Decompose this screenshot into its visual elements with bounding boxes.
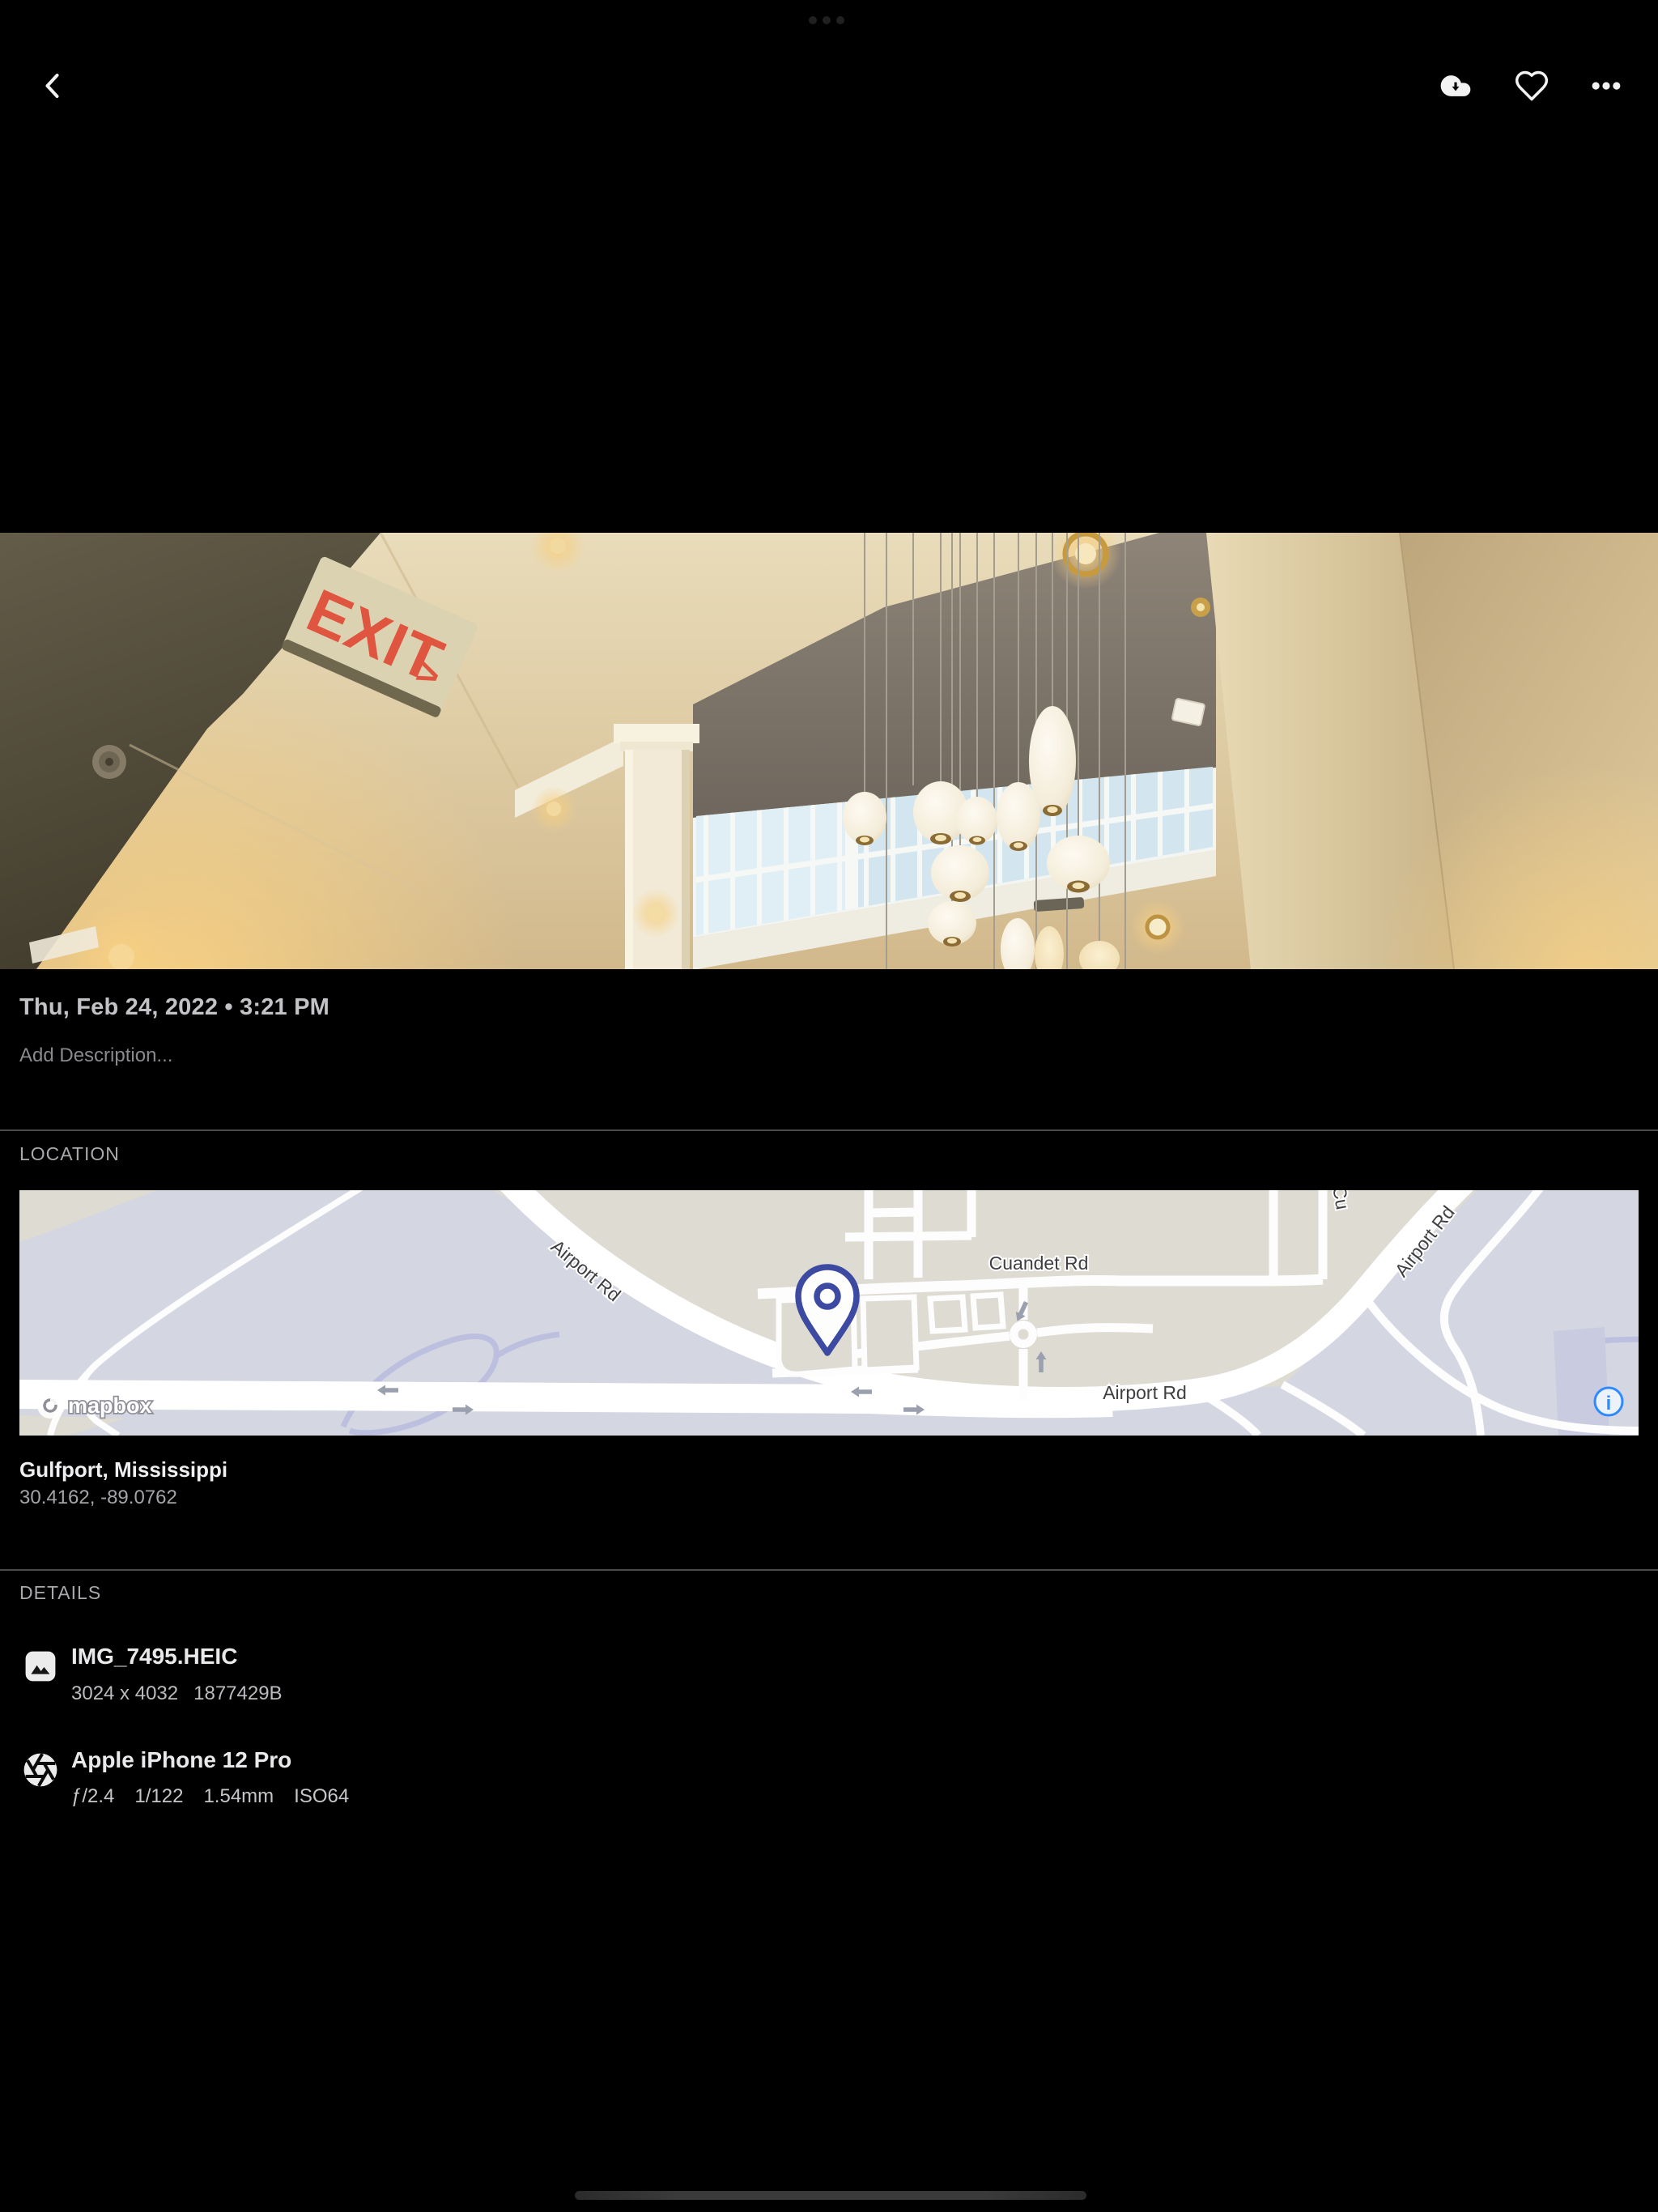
map-label-cu: Cu (1329, 1190, 1354, 1211)
heart-icon (1514, 68, 1550, 104)
home-indicator[interactable] (575, 2191, 1086, 2200)
image-file-icon (21, 1647, 60, 1686)
file-name: IMG_7495.HEIC (71, 1644, 283, 1670)
camera-shutter: 1/122 (134, 1785, 183, 1808)
aperture-icon (21, 1750, 60, 1789)
map-label-cuandet-rd: Cuandet Rd (989, 1253, 1089, 1274)
location-coordinates: 30.4162, -89.0762 (19, 1487, 177, 1509)
file-dimensions: 3024 x 4032 (71, 1682, 178, 1705)
location-place: Gulfport, Mississippi (19, 1457, 227, 1482)
download-button[interactable] (1438, 68, 1473, 104)
map-info-button[interactable]: i (1595, 1388, 1622, 1415)
file-detail-row: IMG_7495.HEIC 3024 x 4032 1877429B (21, 1644, 283, 1705)
location-header: LOCATION (19, 1143, 120, 1165)
multitask-indicator (809, 16, 844, 24)
divider (0, 1569, 1658, 1571)
description-input[interactable]: Add Description... (19, 1044, 172, 1067)
camera-detail-row: Apple iPhone 12 Pro ƒ/2.4 1/122 1.54mm I… (21, 1747, 349, 1808)
map-label-airport-rd-horizontal: Airport Rd (1103, 1382, 1187, 1403)
photo-image[interactable]: EXIT > (0, 533, 1658, 969)
location-map[interactable]: Airport Rd Airport Rd Airport Rd Cuandet… (19, 1190, 1639, 1436)
cloud-download-icon (1438, 68, 1473, 104)
more-button[interactable] (1587, 68, 1626, 104)
camera-iso: ISO64 (294, 1785, 349, 1808)
chevron-left-icon (36, 68, 71, 104)
sprinkler (92, 745, 126, 779)
mapbox-attribution[interactable]: mapbox (37, 1393, 152, 1419)
photo-date: Thu, Feb 24, 2022 • 3:21 PM (19, 994, 329, 1021)
favorite-button[interactable] (1514, 68, 1550, 104)
info-icon: i (1606, 1393, 1612, 1414)
camera-aperture: ƒ/2.4 (71, 1785, 114, 1808)
back-button[interactable] (36, 68, 71, 104)
divider (0, 1129, 1658, 1131)
file-size: 1877429B (193, 1682, 282, 1705)
details-header: DETAILS (19, 1582, 101, 1604)
camera-focal-length: 1.54mm (203, 1785, 274, 1808)
svg-text:mapbox: mapbox (68, 1393, 152, 1418)
ellipsis-icon (1587, 68, 1626, 104)
camera-name: Apple iPhone 12 Pro (71, 1747, 349, 1773)
